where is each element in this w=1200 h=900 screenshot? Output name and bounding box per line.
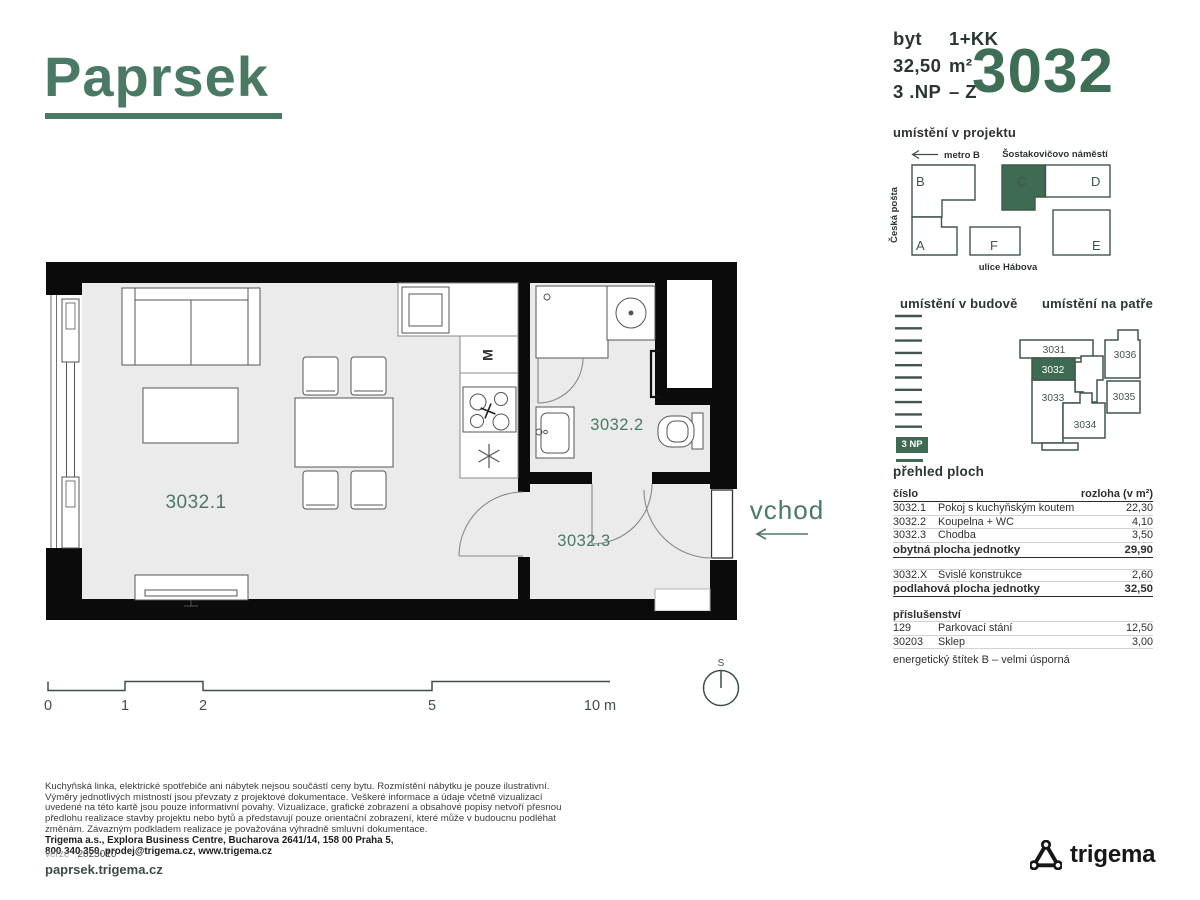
compass-north-label: S [718, 658, 725, 669]
row-name: Chodba [938, 529, 1132, 541]
unit-3033-label: 3033 [1042, 393, 1065, 404]
dining-table-icon [295, 398, 393, 467]
apartment-card: Paprsek byt 1+KK 32,50 m² 3 .NP – Z 3032… [0, 0, 1200, 900]
website-url: paprsek.trigema.cz [45, 862, 163, 877]
unit-3034-label: 3034 [1074, 420, 1097, 431]
room1-label: 3032.1 [165, 492, 226, 513]
coffee-table-icon [143, 388, 238, 443]
floor-area-total-row: podlahová plocha jednotky 32,50 [893, 582, 1153, 597]
col-number: číslo [893, 488, 1081, 500]
total-name: podlahová plocha jednotky [893, 583, 1124, 595]
scale-5: 5 [428, 698, 436, 714]
floor-plan: M [30, 250, 860, 740]
total-value: 32,50 [1124, 583, 1153, 595]
block-c-label: C [1017, 174, 1026, 189]
areas-table: číslo rozloha (v m²) 3032.1 Pokoj s kuch… [893, 487, 1153, 649]
address-line2: 800 340 350, prodej@trigema.cz, www.trig… [45, 847, 564, 858]
scale-2: 2 [199, 698, 207, 714]
paprsek-logo: Paprsek [44, 44, 269, 109]
post-office-label: Česká pošta [888, 186, 900, 243]
scale-10: 10 m [584, 698, 616, 714]
unit-floor-label: 3 .NP [893, 81, 949, 103]
row-name: Koupelna + WC [938, 516, 1132, 528]
window [51, 295, 79, 548]
unit-area-value: 32,50 [893, 55, 949, 77]
site-map-title: umístění v projektu [893, 125, 1016, 140]
unit-area-unit: m² [949, 55, 972, 77]
toilet-icon [658, 413, 703, 449]
block-f-label: F [990, 238, 998, 253]
room3-label: 3032.3 [557, 532, 610, 550]
row-value: 12,50 [1126, 622, 1153, 634]
areas-title: přehled ploch [893, 464, 984, 479]
site-blocks [912, 165, 1110, 255]
row-value: 3,50 [1132, 529, 1153, 541]
row-number: 129 [893, 622, 938, 634]
entry-niche [655, 589, 710, 611]
trigema-logo-icon [1030, 840, 1062, 870]
building-floors-icon [890, 312, 930, 434]
version-label: verze [45, 849, 69, 860]
entry-step-shape [1042, 443, 1078, 450]
areas-header-row: číslo rozloha (v m²) [893, 487, 1153, 502]
block-d-label: D [1091, 174, 1100, 189]
door-gap-floor [518, 492, 530, 557]
company-address: Trigema a.s., Explora Business Centre, B… [45, 836, 564, 858]
row-value: 3,00 [1132, 636, 1153, 648]
entrance-door-panel [712, 490, 733, 558]
building-title: umístění v budově [900, 296, 1018, 311]
table-spacer [893, 558, 1153, 569]
energy-note: energetický štítek B – velmi úsporná [893, 654, 1070, 666]
floor-plate-title: umístění na patře [1042, 296, 1153, 311]
unit-number: 3032 [972, 36, 1114, 107]
unit-type-label: byt [893, 28, 949, 50]
scale-1: 1 [121, 698, 129, 714]
row-number: 3032.3 [893, 529, 938, 541]
table-row: 3032.2 Koupelna + WC 4,10 [893, 516, 1153, 530]
row-value: 22,30 [1126, 502, 1153, 514]
row-name: Parkovací stání [938, 622, 1126, 634]
disclaimer-text: Kuchyňská linka, elektrické spotřebiče a… [45, 782, 564, 836]
metro-arrow-icon [913, 151, 939, 159]
table-row: 3032.1 Pokoj s kuchyňským koutem 22,30 [893, 502, 1153, 516]
accessories-title: příslušenství [893, 609, 1153, 621]
row-name: Pokoj s kuchyňským koutem [938, 502, 1126, 514]
appliance-m-label: M [480, 349, 496, 361]
row-number: 3032.2 [893, 516, 938, 528]
metro-label: metro B [944, 150, 980, 161]
table-row: 129 Parkovací stání 12,50 [893, 622, 1153, 636]
unit-3035-label: 3035 [1113, 392, 1136, 403]
cooktop-icon [463, 387, 516, 432]
block-b-label: B [916, 174, 925, 189]
total-value: 29,90 [1124, 544, 1153, 556]
sofa-icon [122, 288, 260, 365]
door-gap-floor [592, 472, 652, 484]
scale-0: 0 [44, 698, 52, 714]
row-number: 30203 [893, 636, 938, 648]
wall-patch [655, 611, 710, 620]
areas-divider [896, 459, 923, 462]
block-b-shape [912, 165, 975, 217]
row-number: 3032.1 [893, 502, 938, 514]
row-name: Svislé konstrukce [938, 569, 1132, 581]
logo-underline [45, 113, 282, 119]
entrance-label: vchod [750, 495, 824, 525]
table-row: 3032.X Svislé konstrukce 2,60 [893, 569, 1153, 583]
total-name: obytná plocha jednotky [893, 544, 1124, 556]
shower-icon [536, 286, 608, 358]
site-map: metro B Šostakovičovo náměstí Česká pošt… [885, 142, 1130, 276]
compass-icon: S [704, 658, 739, 706]
trigema-logo-text: trigema [1070, 841, 1155, 869]
row-number: 3032.X [893, 569, 938, 581]
room2-label: 3032.2 [590, 416, 643, 434]
block-e-shape [1053, 210, 1110, 255]
version-value: 2025010 [77, 849, 116, 860]
trigema-logo: trigema [1030, 840, 1155, 870]
accessories-header-row: příslušenství [893, 608, 1153, 622]
block-e-label: E [1092, 238, 1101, 253]
street-label: ulice Hábova [979, 262, 1038, 273]
row-value: 2,60 [1132, 569, 1153, 581]
row-name: Sklep [938, 636, 1132, 648]
square-label: Šostakovičovo náměstí [1002, 148, 1108, 160]
col-area: rozloha (v m²) [1081, 488, 1153, 500]
living-area-total-row: obytná plocha jednotky 29,90 [893, 543, 1153, 558]
table-spacer [893, 597, 1153, 608]
floor-plate-map: 3031 3032 3033 3034 3035 3036 [1015, 326, 1145, 456]
block-a-label: A [916, 238, 925, 253]
row-value: 4,10 [1132, 516, 1153, 528]
installation-shaft [667, 280, 712, 388]
version-line: verze2025010 [45, 849, 116, 860]
table-row: 30203 Sklep 3,00 [893, 636, 1153, 650]
floor-badge: 3 NP [896, 437, 928, 453]
unit-3031-label: 3031 [1043, 345, 1066, 356]
unit-3036-label: 3036 [1114, 350, 1137, 361]
entrance-arrow-icon [757, 529, 808, 539]
unit-3032-label: 3032 [1042, 365, 1065, 376]
table-row: 3032.3 Chodba 3,50 [893, 529, 1153, 543]
scale-bar: 0 1 2 5 10 m [44, 682, 616, 715]
